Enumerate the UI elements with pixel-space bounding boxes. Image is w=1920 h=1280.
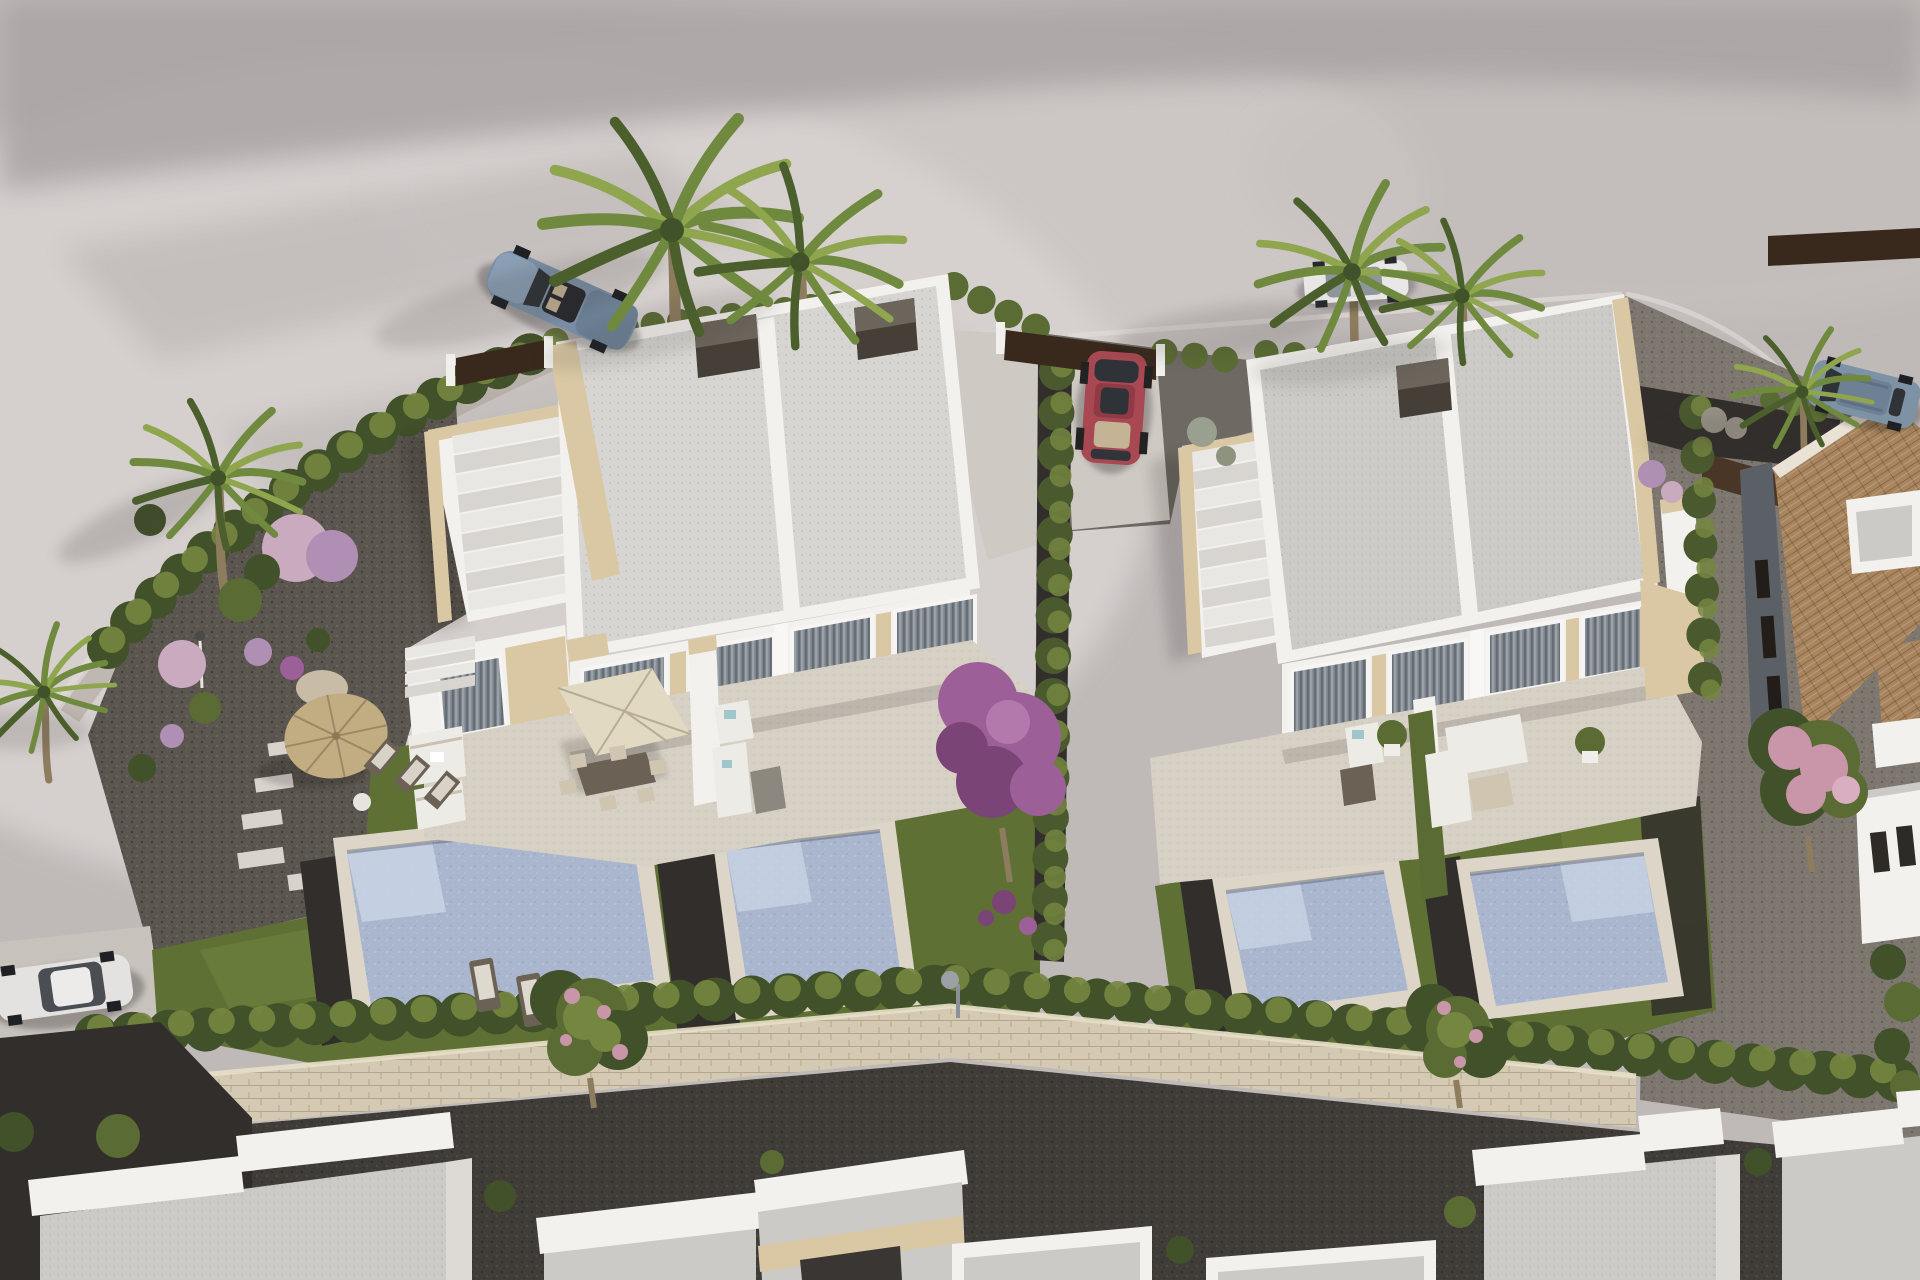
white-house-right-mid [1856, 782, 1920, 944]
render-viewport [0, 0, 1920, 1280]
white-house-top-right [1846, 490, 1920, 574]
pool-right-d [1456, 838, 1684, 1020]
side-table [353, 793, 371, 811]
scene-svg [0, 0, 1920, 1280]
